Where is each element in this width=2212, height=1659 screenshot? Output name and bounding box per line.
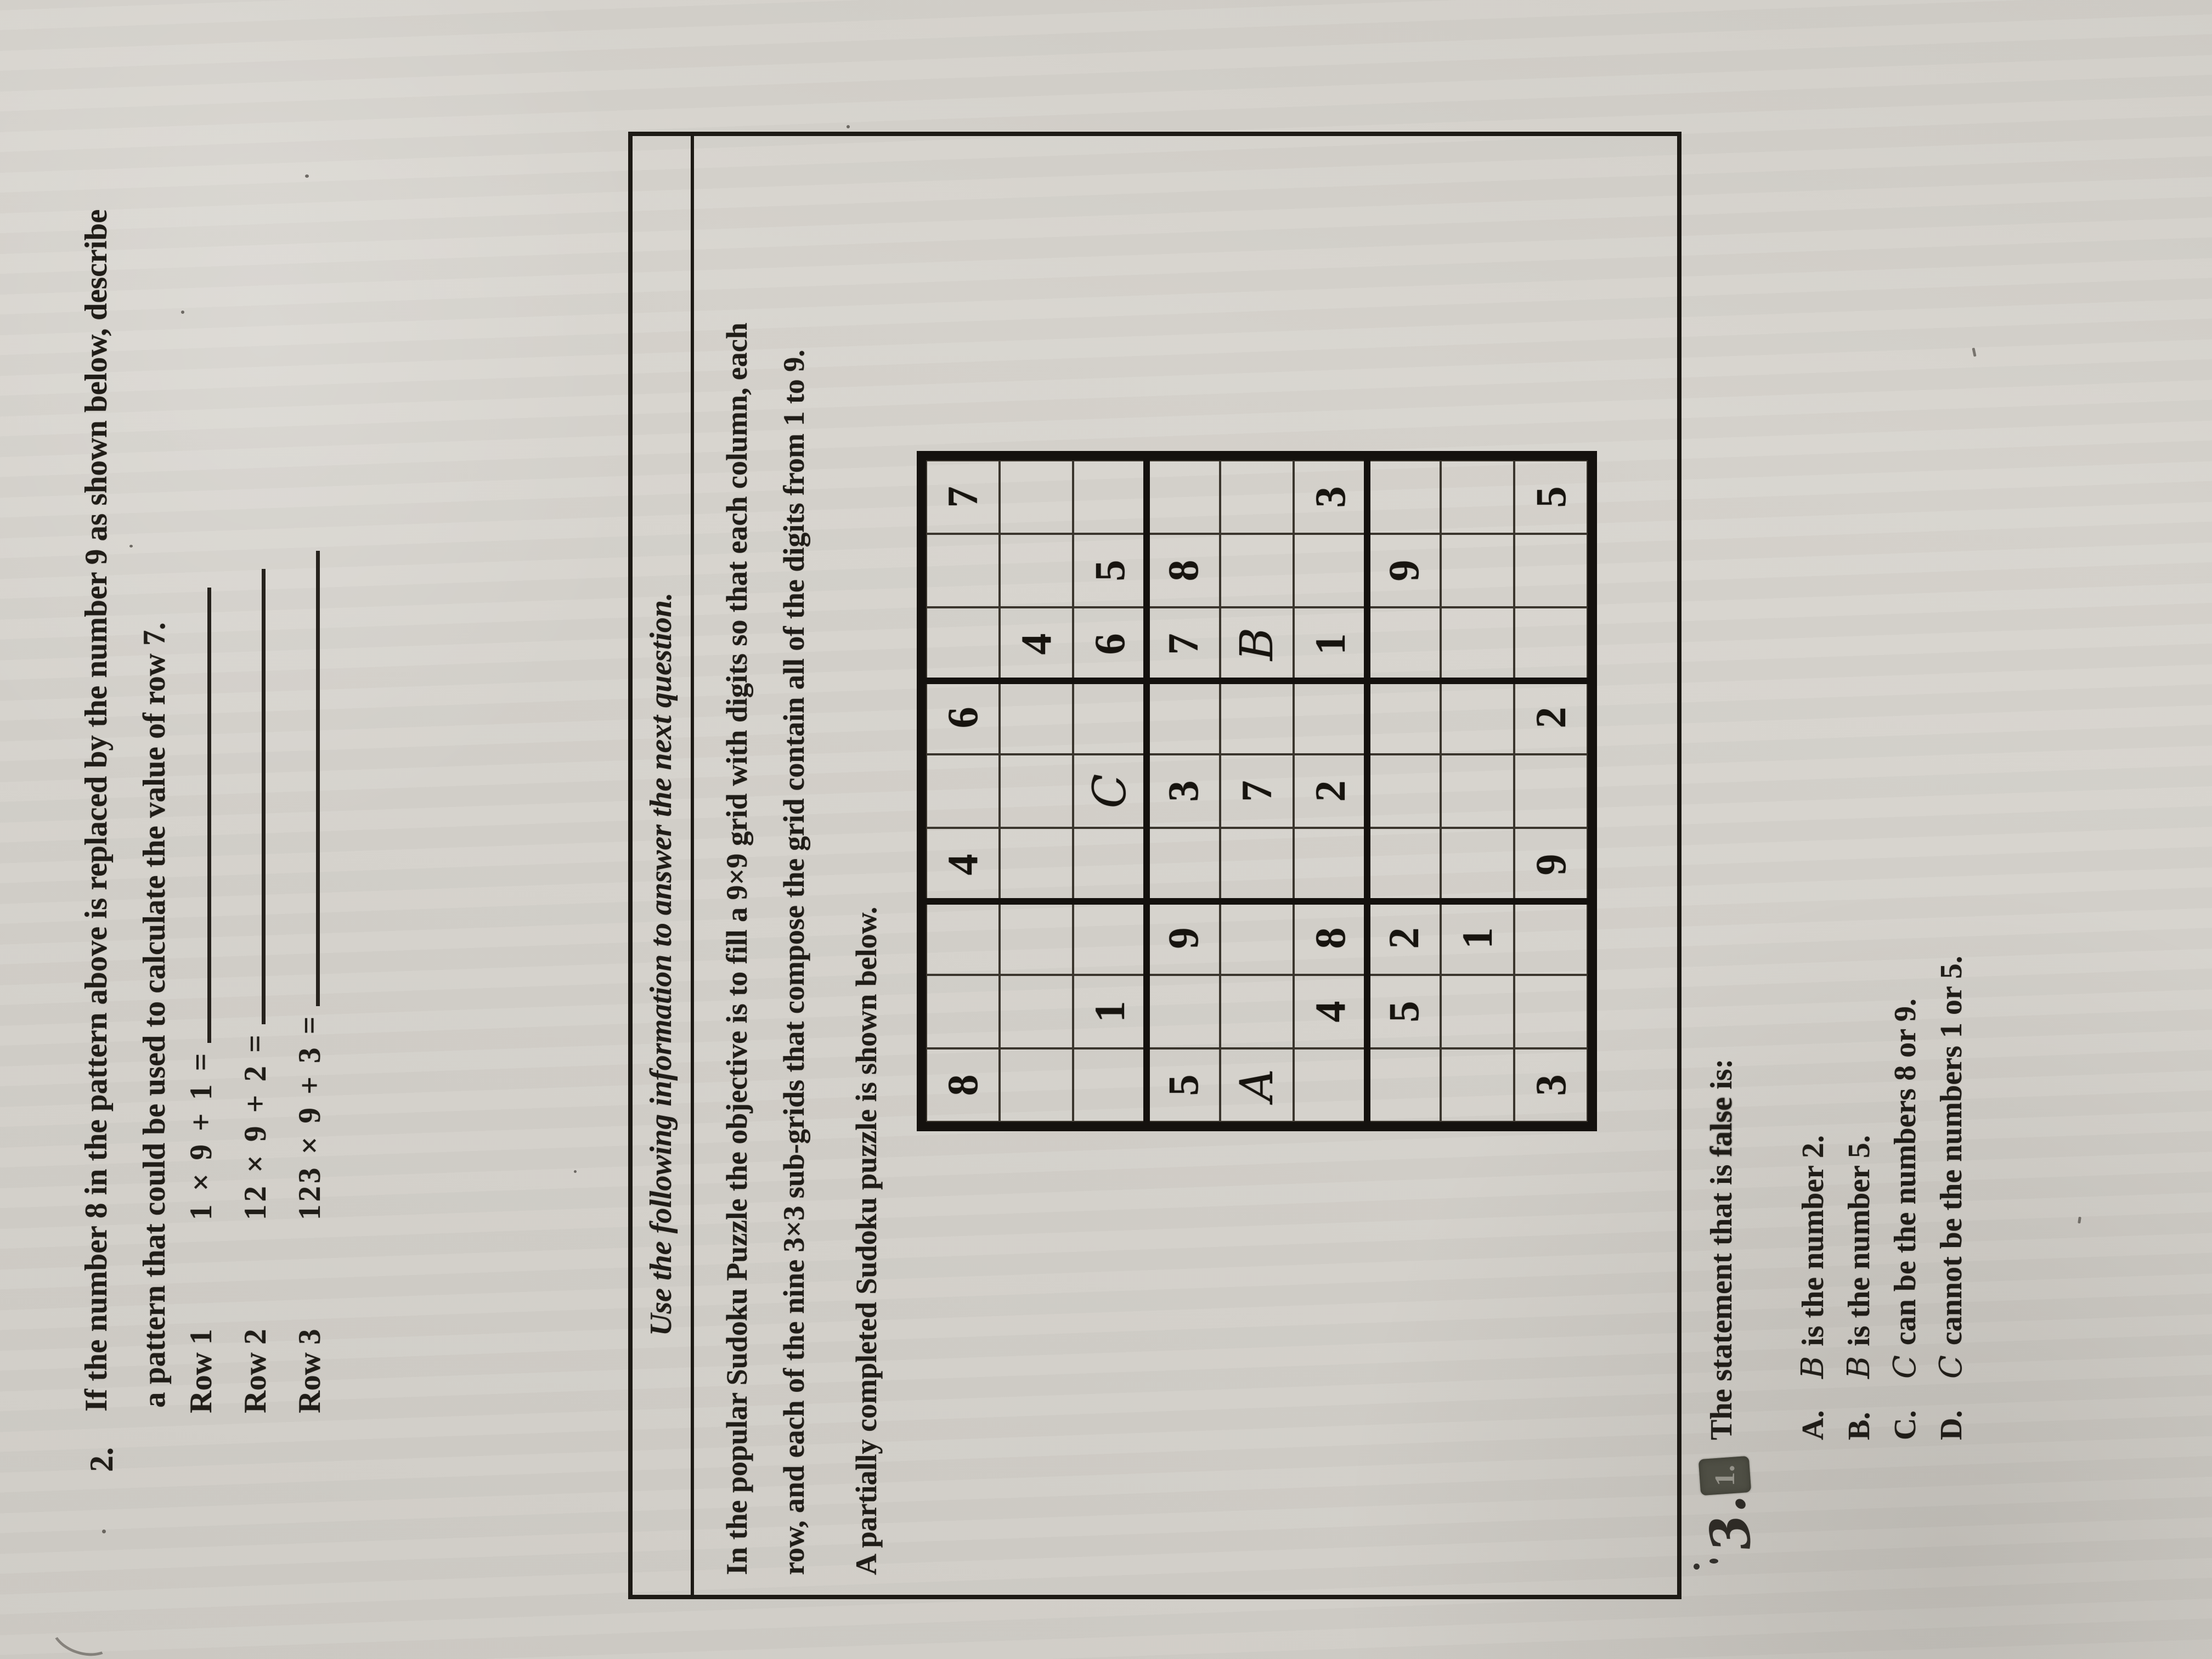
sudoku-cell: 1 bbox=[1073, 975, 1147, 1048]
sudoku-cell bbox=[1294, 828, 1367, 901]
sudoku-cell bbox=[1000, 754, 1073, 828]
sudoku-cell: 5 bbox=[1514, 460, 1588, 534]
sudoku-cell: C bbox=[1073, 754, 1147, 828]
pattern-row: Row 212 × 9 + 2 = bbox=[238, 551, 273, 1413]
sudoku-cell bbox=[1073, 1048, 1147, 1122]
sudoku-cell: 6 bbox=[1073, 607, 1147, 681]
sudoku-cell: 2 bbox=[1294, 754, 1367, 828]
sudoku-cell: 4 bbox=[1000, 607, 1073, 681]
option-subject: C bbox=[1933, 1355, 1969, 1379]
sudoku-cell bbox=[1294, 1048, 1367, 1122]
sudoku-cell bbox=[926, 607, 1000, 681]
pattern-row-expression: 123 × 9 + 3 = bbox=[292, 1014, 328, 1220]
info-box-heading: Use the following information to answer … bbox=[644, 136, 679, 1595]
info-box-paragraph-line1: In the popular Sudoku Puzzle the objecti… bbox=[708, 136, 765, 1575]
sudoku-cell: 4 bbox=[1294, 975, 1367, 1048]
sudoku-cell bbox=[1441, 607, 1514, 681]
stem-text: is: bbox=[1705, 1059, 1739, 1097]
sudoku-cell: 3 bbox=[1294, 460, 1367, 534]
option-subject: B bbox=[1795, 1356, 1831, 1379]
information-box: Use the following information to answer … bbox=[628, 132, 1681, 1599]
option-letter: D. bbox=[1934, 1379, 1969, 1440]
question3-option: B.Bis the number 5. bbox=[1841, 956, 1887, 1440]
sudoku-cell bbox=[1220, 828, 1294, 901]
option-text: can be the numbers 8 or 9. bbox=[1888, 998, 1923, 1345]
sudoku-cell bbox=[1441, 1048, 1514, 1122]
sudoku-cell bbox=[1220, 460, 1294, 534]
sudoku-cell: 2 bbox=[1367, 901, 1441, 975]
paper-speck bbox=[181, 311, 184, 314]
pen-dot bbox=[1709, 1559, 1718, 1564]
sudoku-cell bbox=[1000, 1048, 1073, 1122]
sudoku-cell: 8 bbox=[1147, 534, 1220, 607]
sudoku-cell bbox=[1000, 901, 1073, 975]
pen-dot bbox=[1694, 1564, 1700, 1570]
option-text: is the number 5. bbox=[1842, 1135, 1877, 1346]
sudoku-cell bbox=[1441, 828, 1514, 901]
sudoku-cell bbox=[1367, 681, 1441, 754]
option-letter: A. bbox=[1796, 1379, 1831, 1440]
pattern-row: Row 11 × 9 + 1 = bbox=[183, 551, 219, 1413]
sudoku-cell: 7 bbox=[1147, 607, 1220, 681]
sudoku-cell bbox=[1000, 828, 1073, 901]
pattern-row: Row 3123 × 9 + 3 = bbox=[292, 551, 328, 1413]
sudoku-cell bbox=[1514, 975, 1588, 1048]
sudoku-cell bbox=[1441, 681, 1514, 754]
sudoku-cell: B bbox=[1220, 607, 1294, 681]
answer-blank bbox=[256, 569, 266, 1024]
sudoku-cell bbox=[1367, 1048, 1441, 1122]
sudoku-cell bbox=[1514, 901, 1588, 975]
sudoku-cell bbox=[1220, 901, 1294, 975]
sudoku-cell bbox=[1514, 607, 1588, 681]
sudoku-cell bbox=[926, 534, 1000, 607]
sudoku-cell: 9 bbox=[1514, 828, 1588, 901]
sudoku-cell bbox=[1367, 754, 1441, 828]
stem-bold-word: false bbox=[1705, 1097, 1739, 1157]
paper-speck bbox=[574, 1170, 577, 1173]
sudoku-cell bbox=[1073, 828, 1147, 901]
sudoku-cell: 7 bbox=[1220, 754, 1294, 828]
option-text: is the number 2. bbox=[1796, 1135, 1831, 1346]
stem-text: The statement that is bbox=[1705, 1157, 1739, 1440]
pattern-row-label: Row 1 bbox=[183, 1220, 219, 1413]
sudoku-cell bbox=[1147, 828, 1220, 901]
question3-stem: The statement that is false is: bbox=[1702, 1059, 1741, 1440]
info-box-paragraph-line2: row, and each of the nine 3×3 sub-grids … bbox=[765, 136, 822, 1575]
question3-option: D.Ccannot be the numbers 1 or 5. bbox=[1933, 956, 1979, 1440]
sudoku-cell: 1 bbox=[1294, 607, 1367, 681]
pattern-row-expression: 12 × 9 + 2 = bbox=[238, 1032, 273, 1220]
sudoku-cell bbox=[926, 975, 1000, 1048]
question3-options: A.Bis the number 2.B.Bis the number 5.C.… bbox=[1795, 956, 1979, 1440]
sudoku-cell: 8 bbox=[1294, 901, 1367, 975]
sudoku-cell: A bbox=[1220, 1048, 1294, 1122]
question3-option: A.Bis the number 2. bbox=[1795, 956, 1841, 1440]
answer-blank bbox=[311, 551, 320, 1006]
sudoku-cell bbox=[1514, 534, 1588, 607]
sudoku-cell: 7 bbox=[926, 460, 1000, 534]
sudoku-cell bbox=[1441, 460, 1514, 534]
sudoku-cell: 5 bbox=[1367, 975, 1441, 1048]
question2-text-line1: If the number 8 in the pattern above is … bbox=[77, 210, 116, 1412]
stray-pen-curve bbox=[46, 1601, 122, 1659]
sudoku-cell bbox=[1000, 534, 1073, 607]
option-letter: B. bbox=[1842, 1379, 1877, 1440]
sudoku-cell: 1 bbox=[1441, 901, 1514, 975]
sudoku-bold-divider-vertical-1 bbox=[926, 898, 1588, 905]
paper-speck bbox=[102, 1530, 106, 1533]
sudoku-cell bbox=[1147, 681, 1220, 754]
sudoku-bold-divider-horizontal-1 bbox=[1143, 460, 1150, 1122]
sudoku-cell bbox=[1220, 681, 1294, 754]
sudoku-cell: 8 bbox=[926, 1048, 1000, 1122]
option-text: cannot be the numbers 1 or 5. bbox=[1934, 956, 1969, 1345]
option-subject: C bbox=[1887, 1355, 1923, 1379]
paper-speck bbox=[129, 545, 133, 548]
sudoku-cell bbox=[1441, 975, 1514, 1048]
pencil-scribble-mark: 1. bbox=[1699, 1456, 1751, 1496]
worksheet-page: 2. If the number 8 in the pattern above … bbox=[0, 0, 2212, 1659]
info-box-subtext: A partially completed Sudoku puzzle is s… bbox=[847, 136, 886, 1575]
answer-blank bbox=[202, 588, 211, 1043]
pattern-row-expression: 1 × 9 + 1 = bbox=[183, 1051, 219, 1220]
sudoku-cell bbox=[1294, 681, 1367, 754]
sudoku-cell: 3 bbox=[1147, 754, 1220, 828]
sudoku-cell bbox=[1000, 681, 1073, 754]
sudoku-cell bbox=[1441, 754, 1514, 828]
sudoku-cell bbox=[1147, 975, 1220, 1048]
sudoku-grid: 846741C6559378A7B4821352913925 bbox=[917, 451, 1597, 1131]
question3-number-handwritten: 3. bbox=[1693, 1492, 1766, 1556]
pattern-rows: Row 11 × 9 + 1 =Row 212 × 9 + 2 =Row 312… bbox=[183, 551, 346, 1413]
sudoku-cell bbox=[1220, 975, 1294, 1048]
worksheet-photo: 2. If the number 8 in the pattern above … bbox=[0, 0, 2212, 1659]
sudoku-cell bbox=[1073, 460, 1147, 534]
sudoku-cell bbox=[1000, 460, 1073, 534]
pattern-row-label: Row 3 bbox=[292, 1220, 328, 1413]
info-box-rule bbox=[691, 136, 694, 1595]
question3-option: C.Ccan be the numbers 8 or 9. bbox=[1887, 956, 1933, 1440]
sudoku-cell bbox=[1294, 534, 1367, 607]
sudoku-cell bbox=[1147, 460, 1220, 534]
sudoku-cell: 5 bbox=[1073, 534, 1147, 607]
sudoku-cell bbox=[1441, 534, 1514, 607]
sudoku-cell: 5 bbox=[1147, 1048, 1220, 1122]
paper-speck bbox=[305, 174, 309, 178]
scribbled-over-number: 1. bbox=[1709, 1465, 1741, 1487]
question2-number: 2. bbox=[81, 1447, 122, 1472]
sudoku-cell bbox=[1220, 534, 1294, 607]
sudoku-bold-divider-horizontal-2 bbox=[1364, 460, 1370, 1122]
question2-text-line2: a pattern that could be used to calculat… bbox=[135, 622, 174, 1408]
stray-dash bbox=[2078, 1217, 2081, 1224]
sudoku-cell: 6 bbox=[926, 681, 1000, 754]
sudoku-cell bbox=[1367, 607, 1441, 681]
sudoku-cell bbox=[1367, 460, 1441, 534]
stray-dash bbox=[1972, 348, 1976, 357]
sudoku-cell bbox=[926, 901, 1000, 975]
sudoku-cell: 9 bbox=[1147, 901, 1220, 975]
sudoku-cell: 3 bbox=[1514, 1048, 1588, 1122]
pattern-row-label: Row 2 bbox=[238, 1220, 273, 1413]
sudoku-cell bbox=[1367, 828, 1441, 901]
sudoku-cell bbox=[1073, 901, 1147, 975]
sudoku-cell bbox=[1514, 754, 1588, 828]
sudoku-cell: 4 bbox=[926, 828, 1000, 901]
sudoku-cell bbox=[926, 754, 1000, 828]
sudoku-cell: 9 bbox=[1367, 534, 1441, 607]
paper-speck bbox=[847, 125, 850, 128]
option-letter: C. bbox=[1888, 1379, 1923, 1440]
sudoku-cell: 2 bbox=[1514, 681, 1588, 754]
sudoku-cell bbox=[1073, 681, 1147, 754]
option-subject: B bbox=[1841, 1356, 1877, 1379]
sudoku-cell bbox=[1000, 975, 1073, 1048]
sudoku-bold-divider-vertical-2 bbox=[926, 678, 1588, 684]
